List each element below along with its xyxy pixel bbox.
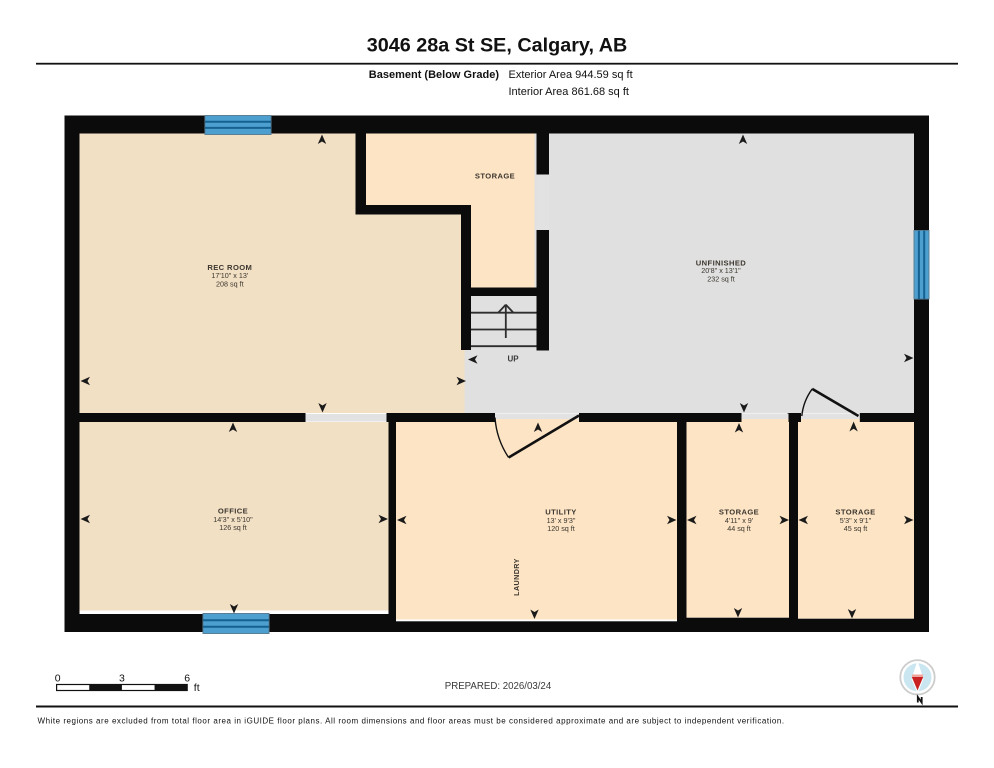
svg-text:Exterior Area 944.59 sq ft: Exterior Area 944.59 sq ft [509, 69, 633, 81]
svg-text:45 sq ft: 45 sq ft [844, 524, 868, 533]
svg-text:UP: UP [507, 355, 519, 364]
svg-text:Interior Area 861.68 sq ft: Interior Area 861.68 sq ft [509, 86, 629, 98]
svg-text:126 sq ft: 126 sq ft [219, 523, 247, 532]
svg-text:0: 0 [55, 673, 61, 685]
svg-text:Basement (Below Grade): Basement (Below Grade) [369, 69, 500, 81]
svg-text:232 sq ft: 232 sq ft [707, 275, 735, 284]
svg-text:44 sq ft: 44 sq ft [727, 524, 751, 533]
svg-text:LAUNDRY: LAUNDRY [512, 558, 521, 596]
svg-text:PREPARED: 2026/03/24: PREPARED: 2026/03/24 [445, 681, 552, 692]
svg-text:ft: ft [194, 682, 200, 694]
svg-text:3: 3 [119, 673, 125, 685]
svg-text:White regions are excluded fro: White regions are excluded from total fl… [38, 717, 785, 726]
svg-text:208 sq ft: 208 sq ft [216, 279, 244, 288]
svg-text:STORAGE: STORAGE [475, 172, 515, 181]
svg-text:120 sq ft: 120 sq ft [547, 524, 575, 533]
svg-text:6: 6 [184, 673, 190, 685]
svg-text:3046 28a St SE, Calgary, AB: 3046 28a St SE, Calgary, AB [367, 35, 628, 57]
